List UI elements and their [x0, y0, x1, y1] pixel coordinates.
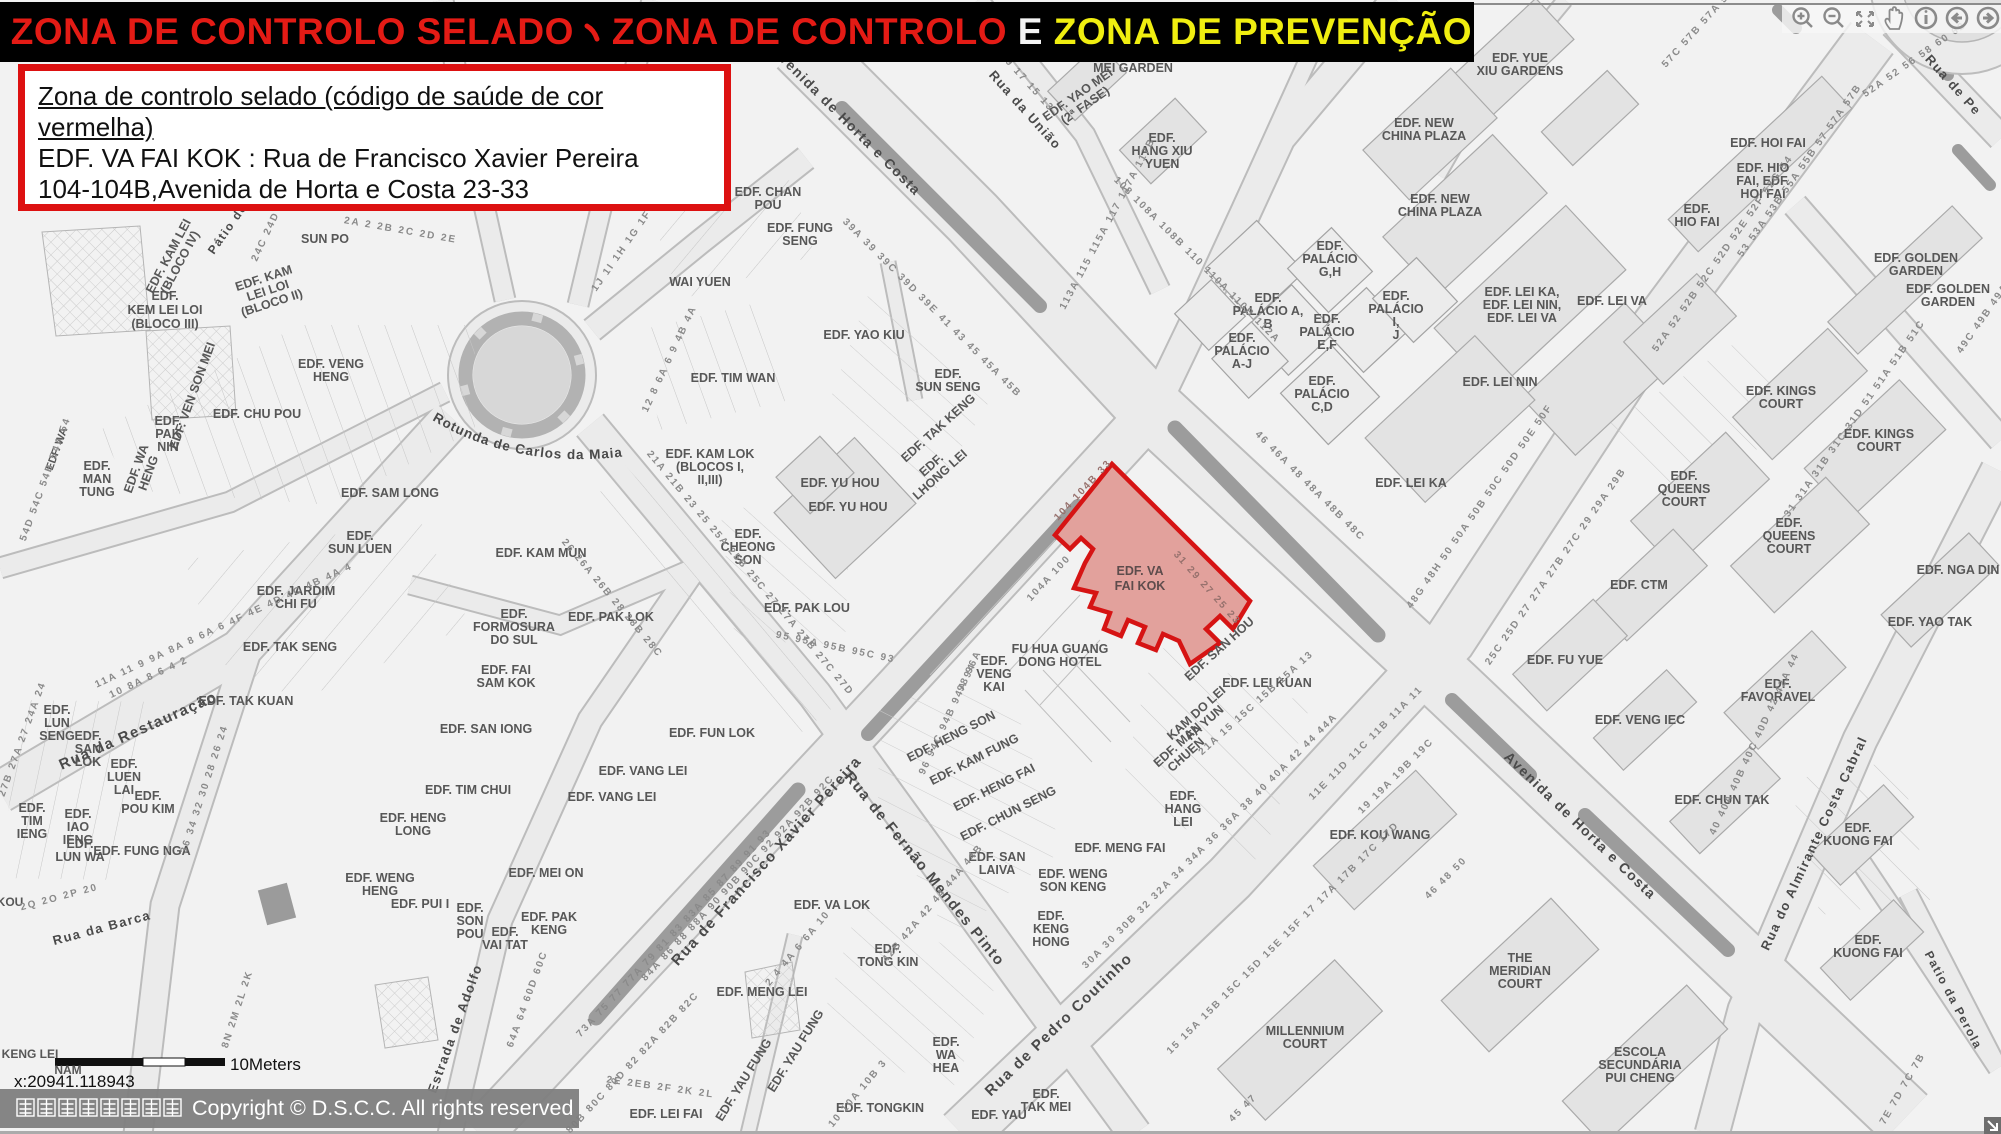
- svg-text:EDF. YAO KIU: EDF. YAO KIU: [823, 328, 904, 342]
- svg-text:EDF. NGA DIN: EDF. NGA DIN: [1917, 563, 2000, 577]
- svg-text:EDF. VENG IEC: EDF. VENG IEC: [1595, 713, 1685, 727]
- svg-text:EDF. FUNG NGA: EDF. FUNG NGA: [93, 844, 190, 858]
- svg-text:EDF.WAHEA: EDF.WAHEA: [932, 1035, 959, 1075]
- svg-text:EDF. LEI FAI: EDF. LEI FAI: [630, 1107, 703, 1121]
- svg-text:EDF.LUNSENG: EDF.LUNSENG: [39, 703, 74, 743]
- svg-text:EDF. VANG LEI: EDF. VANG LEI: [599, 764, 688, 778]
- svg-text:EDF. HOI FAI: EDF. HOI FAI: [1730, 136, 1806, 150]
- svg-text:EDF.SONPOU: EDF.SONPOU: [456, 901, 483, 941]
- svg-text:EDF. LEI NIN: EDF. LEI NIN: [1462, 375, 1537, 389]
- svg-text:EDF.MANTUNG: EDF.MANTUNG: [79, 459, 114, 499]
- svg-text:EDF. TIM CHUI: EDF. TIM CHUI: [425, 783, 511, 797]
- svg-text:NAM: NAM: [54, 1063, 81, 1077]
- svg-text:EDF. PUI I: EDF. PUI I: [391, 897, 449, 911]
- svg-text:KENG LEI: KENG LEI: [2, 1047, 59, 1061]
- svg-text:EDF. MENG LEI: EDF. MENG LEI: [717, 985, 808, 999]
- svg-text:EDF. LEI KA: EDF. LEI KA: [1375, 476, 1447, 490]
- svg-text:EDF. YAO TAK: EDF. YAO TAK: [1888, 615, 1973, 629]
- svg-text:EDF.KENGHONG: EDF.KENGHONG: [1032, 909, 1070, 949]
- svg-text:EDF.SANLOK: EDF.SANLOK: [74, 729, 101, 769]
- svg-text:EDF. MENG FAI: EDF. MENG FAI: [1075, 841, 1166, 855]
- svg-text:EDF. FAISAM KOK: EDF. FAISAM KOK: [476, 663, 535, 690]
- svg-text:EDF. TIM WAN: EDF. TIM WAN: [691, 371, 776, 385]
- svg-text:EDF. CHU POU: EDF. CHU POU: [213, 407, 301, 421]
- svg-text:EDF. YAU: EDF. YAU: [971, 1108, 1027, 1122]
- svg-text:EDF. PAK LOK: EDF. PAK LOK: [568, 610, 654, 624]
- svg-text:EDF. TAK KUAN: EDF. TAK KUAN: [199, 694, 294, 708]
- svg-text:WAI YUEN: WAI YUEN: [669, 275, 731, 289]
- svg-text:EDF. WENGSON KENG: EDF. WENGSON KENG: [1038, 867, 1107, 894]
- svg-text:EDF. SAN IONG: EDF. SAN IONG: [440, 722, 532, 736]
- svg-text:EDF. CTM: EDF. CTM: [1610, 578, 1668, 592]
- svg-text:EDF. SAM LONG: EDF. SAM LONG: [341, 486, 439, 500]
- svg-text:EDF. MEI ON: EDF. MEI ON: [508, 866, 583, 880]
- svg-text:EDF. TAK SENG: EDF. TAK SENG: [243, 640, 337, 654]
- svg-text:EDF. FUN LOK: EDF. FUN LOK: [669, 726, 755, 740]
- svg-text:EDF. LEI VA: EDF. LEI VA: [1577, 294, 1647, 308]
- svg-text:EDF. NEWCHINA PLAZA: EDF. NEWCHINA PLAZA: [1398, 192, 1482, 219]
- svg-text:EDF. VANG LEI: EDF. VANG LEI: [568, 790, 657, 804]
- svg-text:EDF. VA LOK: EDF. VA LOK: [794, 898, 870, 912]
- svg-text:EDF.TIMIENG: EDF.TIMIENG: [17, 801, 48, 841]
- svg-text:EDF. YU HOU: EDF. YU HOU: [801, 476, 880, 490]
- svg-text:FU HUA GUANGDONG HOTEL: FU HUA GUANGDONG HOTEL: [1012, 642, 1109, 669]
- svg-text:EDF. YU HOU: EDF. YU HOU: [809, 500, 888, 514]
- svg-text:EDF. LEI KA,EDF. LEI NIN,EDF.: EDF. LEI KA,EDF. LEI NIN,EDF. LEI VA: [1483, 285, 1561, 325]
- svg-text:EDF.PAKNIN: EDF.PAKNIN: [154, 414, 181, 454]
- svg-text:EDF. FU YUE: EDF. FU YUE: [1527, 653, 1603, 667]
- svg-text:SUN PO: SUN PO: [301, 232, 349, 246]
- svg-text:10Meters: 10Meters: [230, 1055, 301, 1074]
- svg-text:EDF. VAFAI KOK: EDF. VAFAI KOK: [1115, 564, 1166, 593]
- svg-text:EDF. NEWCHINA PLAZA: EDF. NEWCHINA PLAZA: [1382, 116, 1466, 143]
